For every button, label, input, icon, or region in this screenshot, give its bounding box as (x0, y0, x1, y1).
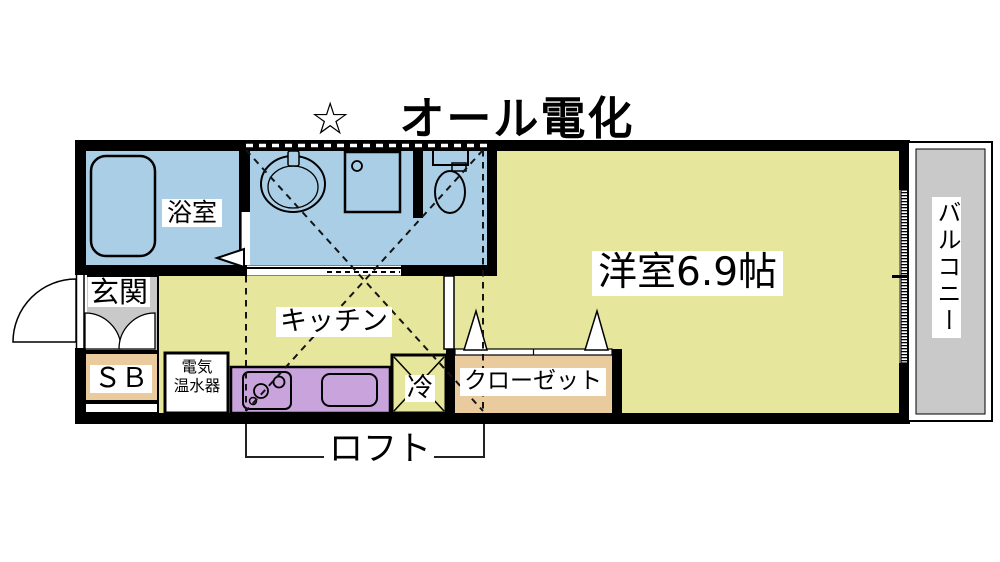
closet-wall-right (612, 349, 622, 413)
label-main-room: 洋室6.9帖 (592, 251, 783, 296)
label-balcony: バルコニー (932, 197, 961, 338)
wall-toilet-partition (413, 146, 423, 218)
floorplan-page: ☆ オール電化 浴室 玄関 ＳＢ 電気 温水器 キッチン 冷 クローゼット 洋室… (0, 0, 1000, 562)
label-water-heater-line1: 電気 (166, 358, 228, 377)
label-closet: クローゼット (460, 368, 606, 396)
label-shoe-box: ＳＢ (90, 365, 152, 393)
wall-bath-divider (239, 146, 250, 212)
label-fridge: 冷 (405, 375, 435, 402)
wall-bottom (75, 413, 910, 424)
entrance-door-swing-icon (13, 279, 76, 342)
washbasin-tap-icon (288, 151, 299, 166)
label-kitchen: キッチン (276, 307, 392, 337)
label-water-heater-line2: 温水器 (166, 377, 228, 396)
label-water-heater: 電気 温水器 (166, 358, 228, 395)
entrance-step (82, 403, 158, 413)
bathroom-door-thin-wall (239, 212, 242, 252)
label-entrance: 玄関 (88, 277, 150, 307)
label-loft: ロフト (326, 432, 434, 467)
closet-wall-left (446, 349, 455, 413)
page-title: ☆ オール電化 (310, 82, 634, 147)
label-bathroom: 浴室 (162, 199, 222, 227)
wet-area-floor (80, 146, 492, 267)
thin-partition-wall (444, 276, 454, 349)
wall-toilet-right (487, 146, 497, 276)
